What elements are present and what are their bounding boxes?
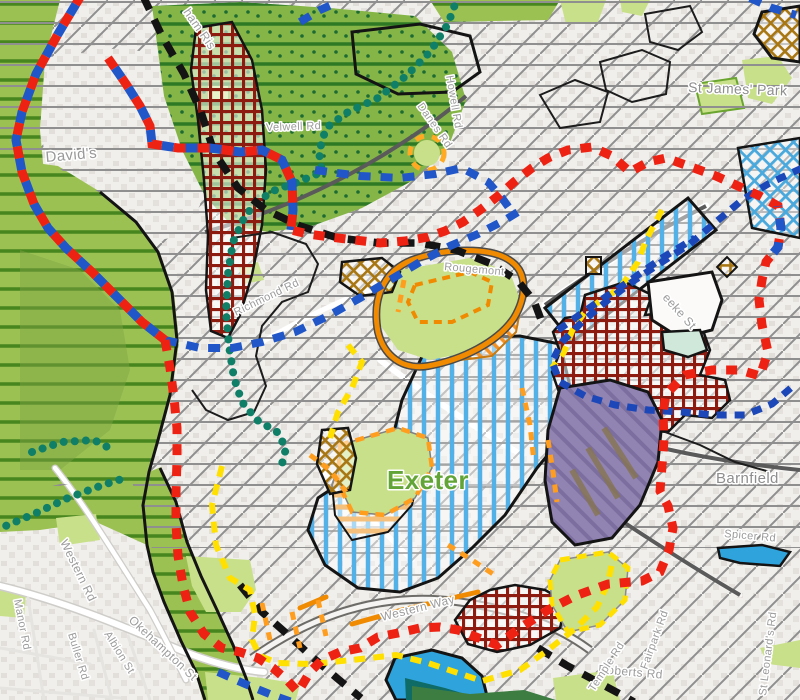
small-green-circle-area (414, 140, 440, 166)
planning-map-canvas: David'sham RisVelwell RdDanes RdHowell R… (0, 0, 800, 700)
map-label: Barnfield (716, 470, 779, 487)
gold-crosshatch-patch-small (586, 257, 601, 274)
map-label: Velwell Rd (266, 120, 322, 134)
map-viewport[interactable]: David'sham RisVelwell RdDanes RdHowell R… (0, 0, 800, 700)
map-label: Exeter (387, 465, 469, 495)
